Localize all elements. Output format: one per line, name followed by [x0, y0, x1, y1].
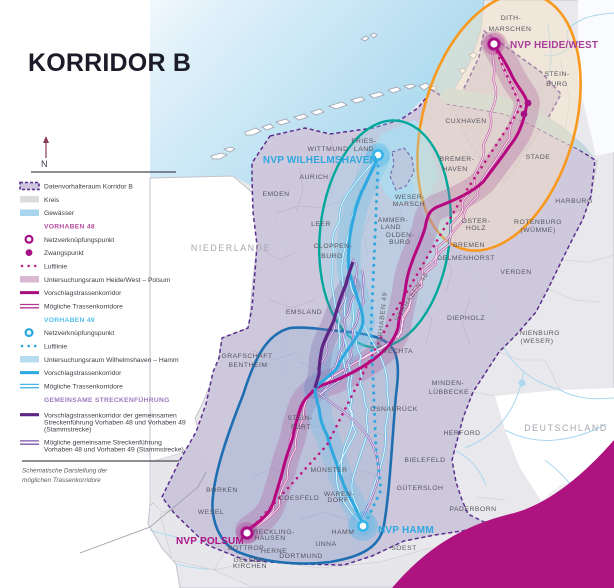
svg-text:LÜBBECKE: LÜBBECKE [429, 388, 469, 396]
svg-text:ROTENBURG: ROTENBURG [514, 219, 562, 226]
svg-text:Mögliche Trassenkorridore: Mögliche Trassenkorridore [44, 304, 123, 311]
svg-text:MARSCHEN: MARSCHEN [489, 26, 532, 33]
svg-text:(Stammstrecke): (Stammstrecke) [44, 427, 91, 434]
svg-text:HAVEN: HAVEN [442, 166, 467, 173]
svg-text:EMDEN: EMDEN [262, 191, 289, 198]
svg-text:DORTMUND: DORTMUND [279, 553, 323, 560]
svg-text:Mögliche gemeinsame Streckenfü: Mögliche gemeinsame Streckenführung [44, 440, 162, 447]
svg-text:HARBURG: HARBURG [555, 198, 593, 205]
svg-text:WITTMUND: WITTMUND [308, 146, 349, 153]
svg-text:Streckenführung Vorhaben 48 un: Streckenführung Vorhaben 48 und Vorhaben… [44, 420, 186, 427]
svg-text:BREMEN: BREMEN [453, 242, 485, 249]
svg-text:DITH-: DITH- [501, 15, 522, 22]
svg-text:STEIN-: STEIN- [544, 71, 569, 78]
svg-text:AURICH: AURICH [299, 174, 328, 181]
svg-text:FRIES-: FRIES- [351, 138, 376, 145]
svg-text:CUXHAVEN: CUXHAVEN [445, 118, 486, 125]
svg-text:OLDEN-: OLDEN- [386, 232, 415, 239]
svg-text:Vorschlagstrassenkorridor der: Vorschlagstrassenkorridor der gemeinsame… [44, 413, 177, 420]
svg-text:BURG: BURG [321, 253, 343, 260]
svg-text:LAND: LAND [381, 224, 401, 231]
svg-text:HAMM: HAMM [332, 529, 355, 536]
svg-text:BENTHEIM: BENTHEIM [228, 362, 267, 369]
svg-text:Kreis: Kreis [44, 197, 60, 204]
svg-text:NVP POLSUM: NVP POLSUM [176, 536, 244, 547]
svg-text:GRAFSCHAFT: GRAFSCHAFT [221, 353, 272, 360]
svg-text:STEIN-: STEIN- [287, 415, 312, 422]
svg-text:FURT: FURT [291, 424, 311, 431]
svg-text:(WESER): (WESER) [521, 338, 554, 345]
svg-text:HAUSEN: HAUSEN [254, 535, 285, 542]
svg-text:Luftlinie: Luftlinie [44, 264, 67, 271]
svg-text:VECHTA: VECHTA [383, 348, 413, 355]
svg-text:UNNA: UNNA [315, 541, 336, 548]
svg-text:GEMEINSAME STRECKENFÜHRUNG: GEMEINSAME STRECKENFÜHRUNG [44, 395, 170, 404]
svg-text:Zwangspunkt: Zwangspunkt [44, 250, 84, 257]
svg-text:BURG: BURG [389, 239, 411, 246]
svg-text:LEER: LEER [311, 221, 331, 228]
svg-text:NIEDERLANDE: NIEDERLANDE [191, 243, 271, 253]
svg-text:Gewässer: Gewässer [44, 210, 75, 217]
svg-text:NVP HEIDE/WEST: NVP HEIDE/WEST [510, 40, 598, 51]
svg-text:WESER-: WESER- [395, 194, 425, 201]
svg-text:KIRCHEN: KIRCHEN [233, 563, 267, 570]
svg-text:BIELEFELD: BIELEFELD [404, 457, 445, 464]
svg-text:BORKEN: BORKEN [206, 487, 238, 494]
svg-text:HERFORD: HERFORD [443, 430, 480, 437]
svg-text:PADERBORN: PADERBORN [449, 506, 496, 513]
svg-text:Vorschlagstrassenkorridor: Vorschlagstrassenkorridor [44, 370, 122, 377]
svg-text:GÜTERSLOH: GÜTERSLOH [397, 484, 444, 492]
svg-text:Netzverknüpfungspunkt: Netzverknüpfungspunkt [44, 330, 114, 337]
svg-text:SOEST: SOEST [391, 545, 417, 552]
svg-text:MINDEN-: MINDEN- [432, 380, 465, 387]
svg-text:VORHABEN 49: VORHABEN 49 [44, 317, 95, 324]
svg-text:Schematische Darstellung der: Schematische Darstellung der [22, 468, 108, 475]
svg-text:AMMER-: AMMER- [378, 217, 409, 224]
svg-text:DIEPHOLZ: DIEPHOLZ [447, 315, 485, 322]
svg-text:Datenvorhalteraum Korridor B: Datenvorhalteraum Korridor B [44, 184, 133, 191]
svg-text:LAND: LAND [354, 146, 374, 153]
svg-text:NIENBURG: NIENBURG [520, 330, 560, 337]
svg-text:Untersuchungsraum Heide/West –: Untersuchungsraum Heide/West – Polsum [44, 277, 171, 284]
svg-text:N: N [41, 159, 48, 169]
svg-text:Mögliche Trassenkorridore: Mögliche Trassenkorridore [44, 384, 123, 391]
svg-text:Luftlinie: Luftlinie [44, 344, 67, 351]
svg-text:BURG: BURG [546, 81, 568, 88]
svg-text:Vorhaben 48 und Vorhaben 49 (S: Vorhaben 48 und Vorhaben 49 (Stammstreck… [44, 447, 184, 454]
svg-text:KORRIDOR B: KORRIDOR B [28, 49, 191, 77]
svg-text:EMSLAND: EMSLAND [286, 309, 322, 316]
svg-text:WESEL: WESEL [198, 509, 224, 516]
svg-text:Vorschlagstrassenkorridor: Vorschlagstrassenkorridor [44, 290, 122, 297]
svg-text:DORF: DORF [327, 497, 348, 504]
svg-text:(WÜMME): (WÜMME) [520, 226, 555, 234]
svg-text:NVP HAMM: NVP HAMM [378, 525, 434, 536]
svg-text:HOLZ: HOLZ [466, 225, 486, 232]
svg-text:OSNABRÜCK: OSNABRÜCK [370, 405, 418, 413]
svg-text:BREMER-: BREMER- [440, 156, 475, 163]
svg-text:MÜNSTER: MÜNSTER [310, 466, 347, 474]
svg-text:COESFELD: COESFELD [279, 495, 320, 502]
svg-text:DEUTSCHLAND: DEUTSCHLAND [524, 423, 608, 433]
svg-text:MARSCH: MARSCH [393, 201, 425, 208]
svg-text:CLOPPEN-: CLOPPEN- [314, 243, 353, 250]
svg-text:NVP WILHELMSHAVEN: NVP WILHELMSHAVEN [263, 155, 377, 166]
svg-text:Netzverknüpfungspunkt: Netzverknüpfungspunkt [44, 237, 114, 244]
svg-text:DELMENHORST: DELMENHORST [437, 255, 495, 262]
svg-text:möglichen Trassenkorridore: möglichen Trassenkorridore [22, 477, 101, 484]
svg-text:Untersuchungsraum Wilhelmshave: Untersuchungsraum Wilhelmshaven – Hamm [44, 357, 179, 364]
svg-text:STADE: STADE [526, 154, 551, 161]
svg-text:VORHABEN 48: VORHABEN 48 [44, 224, 95, 231]
svg-text:VERDEN: VERDEN [500, 269, 531, 276]
svg-text:OSTER-: OSTER- [462, 218, 491, 225]
